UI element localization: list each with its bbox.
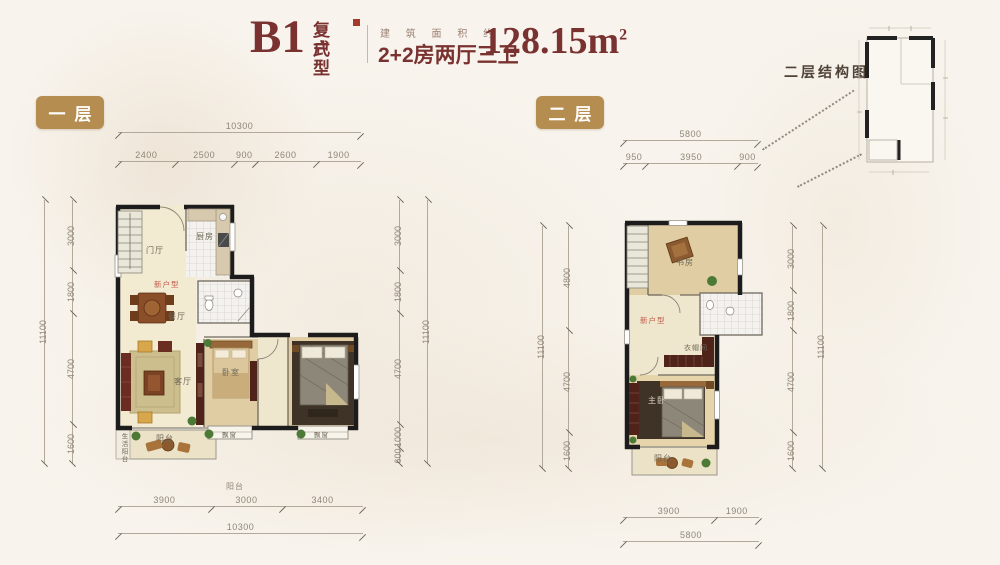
dim-segment: 3950 <box>645 151 737 164</box>
floor2-right-total-dim: 11100 <box>822 226 835 468</box>
floor1-right-total-dim: 11100 <box>427 200 440 463</box>
dim-value: 11100 <box>38 309 48 355</box>
dim-segment: 4800 <box>568 226 581 331</box>
area-prefix: 建 筑 面 积 约 <box>380 25 500 40</box>
dim-value: 10300 <box>118 121 361 131</box>
dim-value: 1900 <box>714 506 759 516</box>
area-value: 128.15 <box>483 20 588 62</box>
dim-value: 900 <box>234 150 255 160</box>
dim-value: 2400 <box>118 150 175 160</box>
dim-segment: 4700 <box>792 331 805 433</box>
dim-value: 1800 <box>393 269 403 315</box>
dim-value: 11100 <box>536 324 546 370</box>
dim-value: 5800 <box>623 530 759 540</box>
room-label-living: 客厅 <box>174 376 192 387</box>
dim-segment: 11100 <box>542 226 555 468</box>
floor2-bottom-segments-dim: 3900 1900 <box>623 505 759 518</box>
dim-segment: 1600 <box>792 433 805 468</box>
room-label-entry: 门厅 <box>146 245 164 256</box>
room-label-balcony: 阳台 <box>156 433 174 444</box>
floor2-left-segments-dim: 4800 4700 1600 <box>568 226 581 468</box>
floor2-top-segments-dim: 950 3950 900 <box>623 151 758 164</box>
dim-segment: 3900 <box>623 505 714 518</box>
area-superscript: 2 <box>619 26 627 43</box>
dim-segment: 3000 <box>211 494 282 507</box>
dim-value: 4800 <box>562 255 572 301</box>
floor1-left-total-dim: 11100 <box>44 200 57 463</box>
floor1-plan: 门厅 新户型 厨房 餐厅 客厅 卧室 阳台 生活阳台 飘窗 飘窗 <box>112 193 364 465</box>
unit-code: B1 <box>250 14 305 61</box>
dim-segment: 1900 <box>714 505 759 518</box>
dim-segment: 4700 <box>568 331 581 433</box>
dim-segment: 4700 <box>399 314 412 425</box>
floor1-plan-drawing <box>112 193 364 465</box>
badge-floor2: 二层 <box>536 96 604 129</box>
dim-value: 1600 <box>66 421 76 467</box>
dim-value: 2500 <box>175 150 234 160</box>
dim-value: 900 <box>737 152 758 162</box>
dim-value: 2600 <box>255 150 316 160</box>
dim-segment: 1600 <box>72 425 85 463</box>
dim-value: 3900 <box>623 506 714 516</box>
room-label-watermark: 新户型 <box>154 279 180 290</box>
unit-type-line2: 户型 <box>313 40 331 78</box>
dim-segment: 11100 <box>822 226 835 468</box>
room-label-watermark: 新户型 <box>640 315 666 326</box>
dim-value: 4700 <box>786 359 796 405</box>
dim-segment: 10300 <box>118 521 363 534</box>
floor1-bottom-segments-dim: 3900 3000 3400 <box>118 494 363 507</box>
dim-value: 1600 <box>786 428 796 474</box>
dim-segment: 1600 <box>568 433 581 468</box>
dim-value: 1900 <box>316 150 361 160</box>
dim-value: 3000 <box>786 236 796 282</box>
floor2-left-total-dim: 11100 <box>542 226 555 468</box>
dim-segment: 3900 <box>118 494 211 507</box>
dim-value: 11100 <box>421 309 431 355</box>
room-label-bay-right: 飘窗 <box>314 429 329 439</box>
room-label-dining: 餐厅 <box>168 311 186 322</box>
dim-value: 1800 <box>66 269 76 315</box>
floor2-plan: 书房 新户型 衣帽间 主卧 阳台 <box>612 195 777 480</box>
dotted-leader-line <box>762 90 855 151</box>
dim-segment: 5800 <box>623 529 759 542</box>
badge-floor1: 一层 <box>36 96 104 129</box>
room-label-bay-left: 飘窗 <box>222 429 237 439</box>
floor1-top-segments-dim: 2400 2500 900 2600 1900 <box>118 149 361 162</box>
dim-segment: 4700 <box>72 314 85 425</box>
room-label-kitchen: 厨房 <box>196 231 214 242</box>
dim-value: 4700 <box>393 346 403 392</box>
dim-segment: 1800 <box>399 271 412 314</box>
dim-segment: 900 <box>234 149 255 162</box>
dim-segment: 11100 <box>427 200 440 463</box>
floor1-left-segments-dim: 3000 1800 4700 1600 <box>72 200 85 463</box>
dim-segment: 3000 <box>399 200 412 271</box>
dim-segment: 900 <box>737 151 758 164</box>
dim-segment: 1900 <box>316 149 361 162</box>
dim-segment: 10300 <box>118 120 361 133</box>
dim-segment: 3000 <box>792 226 805 291</box>
dim-segment: 5800 <box>623 128 758 141</box>
dim-value: 3000 <box>393 213 403 259</box>
floor2-bottom-total-dim: 5800 <box>623 529 759 542</box>
dim-segment: 1800 <box>72 271 85 314</box>
floor1-right-segments-dim: 3000 1800 4700 1000 600 <box>399 200 412 463</box>
floor2-top-total-dim: 5800 <box>623 128 758 141</box>
floor1-bottom-total-dim: 10300 <box>118 521 363 534</box>
dim-value: 4700 <box>562 359 572 405</box>
room-label-balcony: 阳台 <box>654 453 672 464</box>
dim-value: 950 <box>623 152 645 162</box>
dim-segment: 3400 <box>282 494 363 507</box>
dim-value: 3950 <box>645 152 737 162</box>
dim-value: 3000 <box>211 495 282 505</box>
dim-value: 3000 <box>66 213 76 259</box>
floor2-right-segments-dim: 3000 1800 4700 1600 <box>792 226 805 468</box>
dim-segment: 11100 <box>44 200 57 463</box>
dim-segment: 2400 <box>118 149 175 162</box>
dim-segment: 2600 <box>255 149 316 162</box>
dim-value: 1600 <box>562 428 572 474</box>
red-seal-icon <box>353 19 360 26</box>
header-divider <box>367 25 368 63</box>
floor1-balcony-callout: 阳台 <box>226 481 244 492</box>
dim-value: 4700 <box>66 346 76 392</box>
dim-segment: 600 <box>399 449 412 463</box>
structure-diagram-drawing <box>853 22 951 180</box>
dim-segment: 3000 <box>72 200 85 271</box>
dim-segment: 950 <box>623 151 645 164</box>
room-label-side-balcony: 生活阳台 <box>118 433 128 463</box>
room-label-master: 主卧 <box>648 395 666 406</box>
floorplan-page: B1 复式 户型 建 筑 面 积 约 2+2房两厅三卫 128.15m2 一层 … <box>0 0 1000 565</box>
dim-value: 11100 <box>816 324 826 370</box>
dim-value: 5800 <box>623 129 758 139</box>
area-figure: 128.15m2 <box>483 22 627 60</box>
dim-segment: 1800 <box>792 291 805 330</box>
area-unit: m <box>588 20 620 62</box>
dim-segment: 2500 <box>175 149 234 162</box>
dim-value: 3400 <box>282 495 363 505</box>
structure-diagram-thumbnail <box>853 22 951 180</box>
dim-value: 10300 <box>118 522 363 532</box>
room-label-study: 书房 <box>676 257 694 268</box>
dim-value: 600 <box>393 433 403 479</box>
room-label-closet: 衣帽间 <box>684 343 708 353</box>
dim-value: 3900 <box>118 495 211 505</box>
room-label-bedroom: 卧室 <box>222 367 240 378</box>
floor2-plan-drawing <box>612 195 777 480</box>
floor1-top-total-dim: 10300 <box>118 120 361 133</box>
